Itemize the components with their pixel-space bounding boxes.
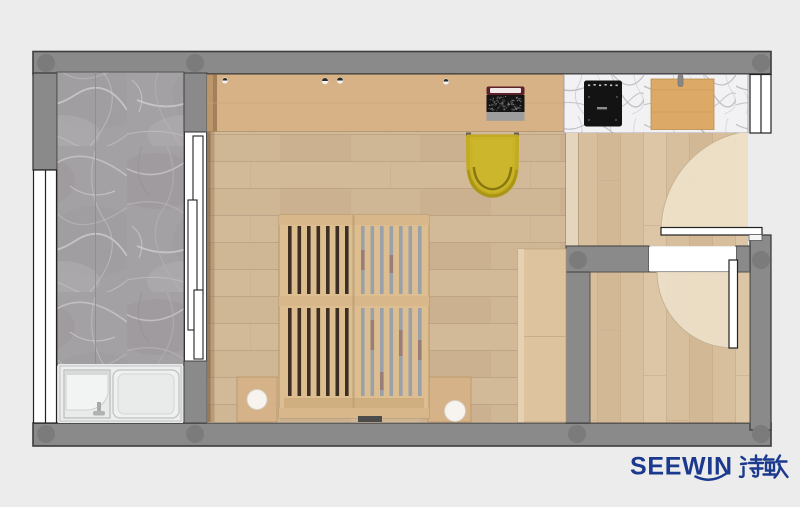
svg-text:SEEWIN: SEEWIN bbox=[630, 453, 732, 481]
